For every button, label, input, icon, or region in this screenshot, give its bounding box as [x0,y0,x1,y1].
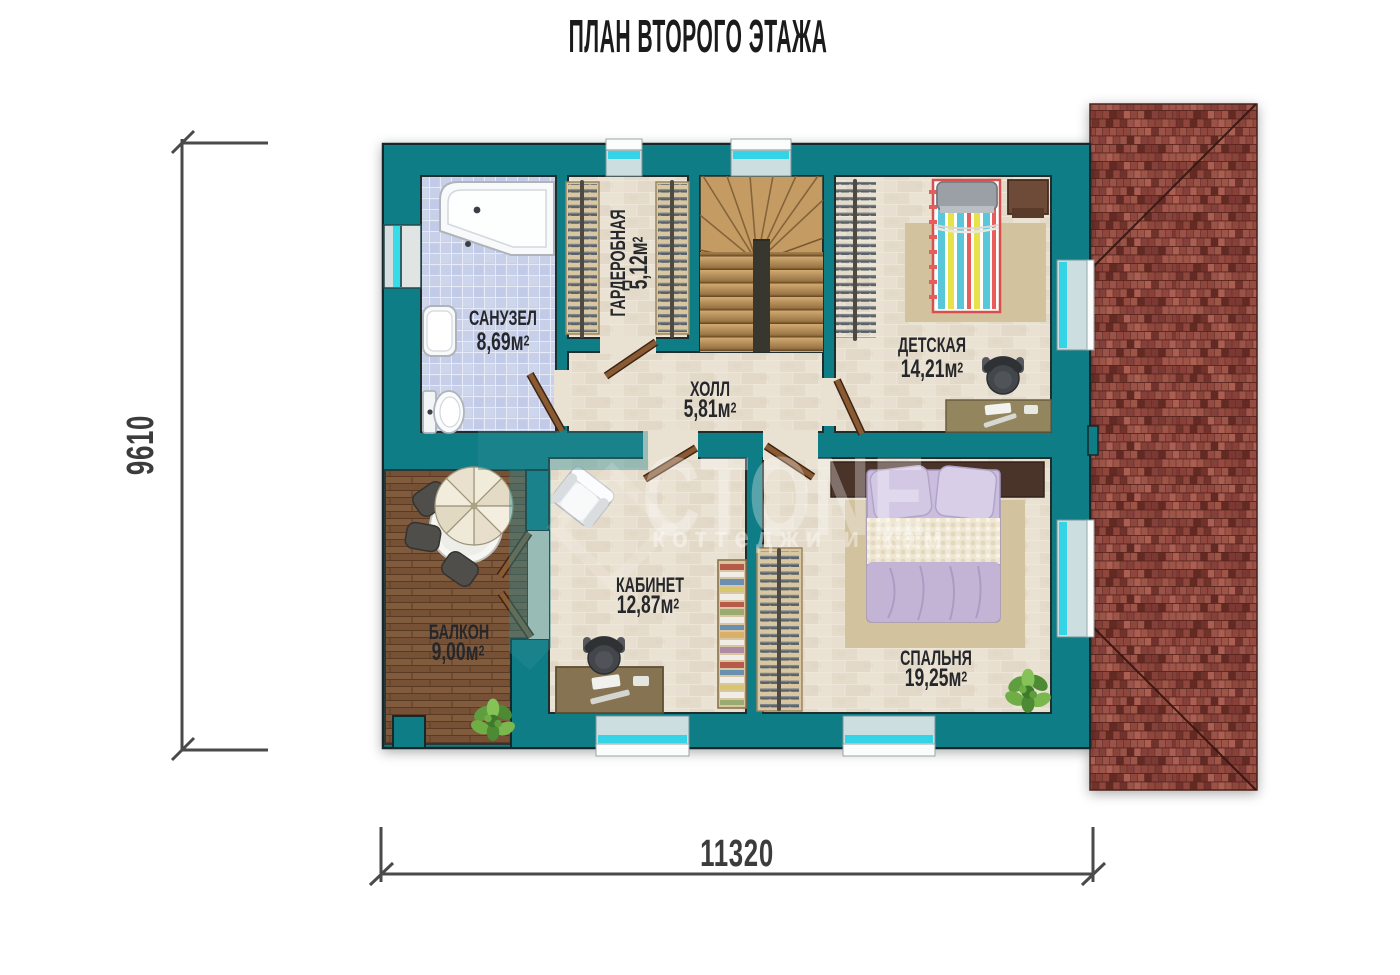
svg-text:5,81м2: 5,81м2 [684,394,737,423]
svg-text:19,25м2: 19,25м2 [905,663,968,692]
svg-text:11320: 11320 [700,832,774,874]
svg-text:14,21м2: 14,21м2 [901,354,964,383]
svg-text:9,00м2: 9,00м2 [432,637,485,666]
svg-text:9610: 9610 [119,415,161,475]
svg-text:8,69м2: 8,69м2 [477,327,530,356]
svg-text:12,87м2: 12,87м2 [617,590,680,619]
svg-text:ПЛАН ВТОРОГО ЭТАЖА: ПЛАН ВТОРОГО ЭТАЖА [569,11,828,62]
svg-text:коттеджи и кам: коттеджи и кам [652,521,949,554]
svg-text:5,12м2: 5,12м2 [624,237,653,290]
